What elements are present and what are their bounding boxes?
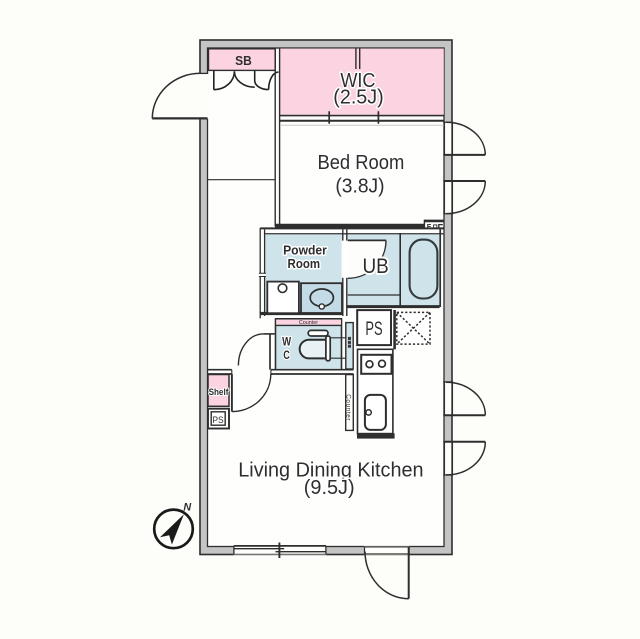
svg-text:Counter: Counter xyxy=(299,320,318,326)
svg-text:Powder: Powder xyxy=(283,243,327,257)
svg-text:(9.5J): (9.5J) xyxy=(304,477,355,499)
svg-text:Shelf: Shelf xyxy=(209,387,230,397)
svg-text:Bed Room: Bed Room xyxy=(317,152,404,174)
svg-text:SB: SB xyxy=(235,53,252,68)
svg-text:PS: PS xyxy=(365,318,382,340)
svg-text:Room: Room xyxy=(288,257,321,271)
svg-text:(2.5J): (2.5J) xyxy=(333,87,383,109)
svg-text:PS: PS xyxy=(212,415,223,426)
svg-text:Counter: Counter xyxy=(345,394,352,421)
svg-text:N: N xyxy=(183,501,191,513)
svg-text:W: W xyxy=(282,337,291,349)
svg-text:(3.8J): (3.8J) xyxy=(335,176,384,198)
svg-text:UB: UB xyxy=(362,255,388,278)
svg-text:C: C xyxy=(283,348,290,362)
